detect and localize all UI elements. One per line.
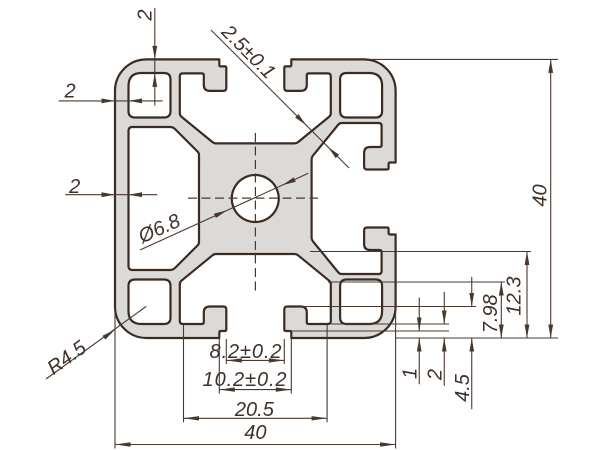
svg-text:2: 2 <box>63 80 75 102</box>
svg-text:Ø6.8: Ø6.8 <box>134 210 183 248</box>
svg-text:40: 40 <box>244 422 266 444</box>
svg-text:4.5: 4.5 <box>452 373 474 402</box>
svg-text:2: 2 <box>425 369 447 381</box>
svg-text:10.2±0.2: 10.2±0.2 <box>203 369 288 391</box>
svg-text:20.5: 20.5 <box>234 399 275 421</box>
svg-text:1: 1 <box>400 368 422 379</box>
svg-text:7.98: 7.98 <box>480 294 502 333</box>
svg-text:40: 40 <box>529 184 551 206</box>
svg-text:8.2±0.2: 8.2±0.2 <box>210 341 283 363</box>
svg-text:2: 2 <box>134 9 156 21</box>
svg-text:R4.5: R4.5 <box>43 336 91 379</box>
svg-text:2: 2 <box>68 176 80 198</box>
svg-text:12.3: 12.3 <box>503 277 525 316</box>
